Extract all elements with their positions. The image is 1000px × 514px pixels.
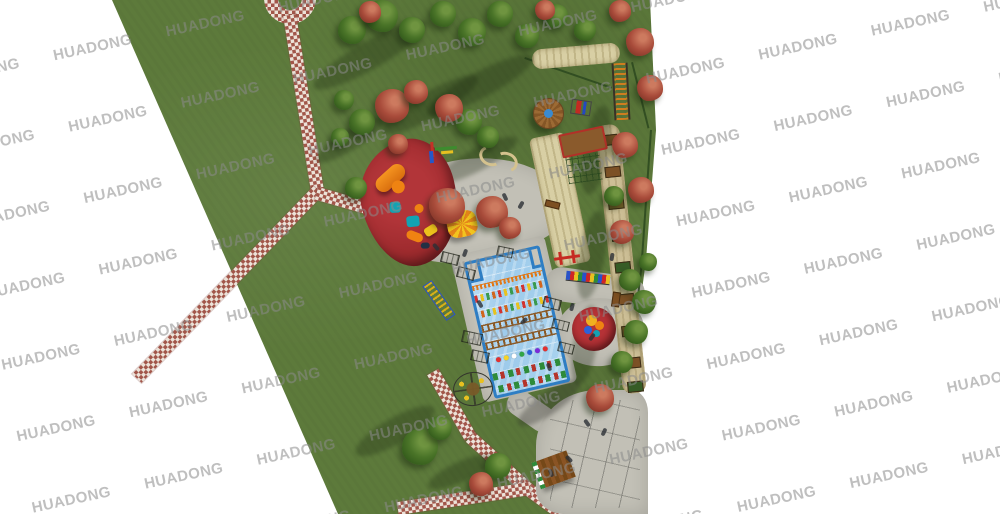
watermark-text: HUADONG bbox=[0, 55, 21, 88]
tree-red bbox=[610, 220, 634, 244]
tree-red bbox=[404, 80, 428, 104]
watermark-text: HUADONG bbox=[930, 292, 1000, 325]
play-platform bbox=[406, 215, 420, 227]
watermark-text: HUADONG bbox=[52, 31, 134, 64]
watermark-text: HUADONG bbox=[675, 197, 757, 230]
watermark-text: HUADONG bbox=[143, 459, 225, 492]
tree-green bbox=[611, 351, 633, 373]
watermark-text: HUADONG bbox=[869, 6, 951, 39]
seesaw-plane bbox=[553, 247, 581, 267]
watermark-text: HUADONG bbox=[15, 412, 97, 445]
tree-red bbox=[429, 188, 465, 224]
float-ball bbox=[511, 353, 517, 359]
watermark-text: HUADONG bbox=[772, 102, 854, 135]
tree-red bbox=[612, 132, 638, 158]
swing-beam bbox=[441, 150, 453, 154]
watermark-text: HUADONG bbox=[976, 506, 1000, 514]
tree-red bbox=[628, 177, 654, 203]
site-plan-render: HUADONGHUADONGHUADONGHUADONGHUADONGHUADO… bbox=[0, 0, 1000, 514]
watermark-text: HUADONG bbox=[128, 388, 210, 421]
watermark-text: HUADONG bbox=[982, 0, 1000, 16]
watermark-text: HUADONG bbox=[705, 340, 787, 373]
watermark-text: HUADONG bbox=[0, 126, 36, 159]
watermark-text: HUADONG bbox=[67, 102, 149, 135]
tree-green bbox=[619, 269, 641, 291]
rope-climb-net bbox=[565, 153, 602, 184]
slide-tube bbox=[405, 229, 424, 243]
watermark-text: HUADONG bbox=[915, 221, 997, 254]
watermark-text: HUADONG bbox=[802, 245, 884, 278]
swing-set bbox=[428, 138, 460, 165]
watermark-text: HUADONG bbox=[660, 126, 742, 159]
watermark-text: HUADONG bbox=[0, 198, 52, 231]
merry-go-round bbox=[533, 98, 564, 129]
obstacle-station bbox=[627, 380, 644, 393]
play-structure bbox=[414, 203, 425, 214]
merry-go-round-hub bbox=[544, 109, 553, 118]
tree-red bbox=[469, 472, 493, 496]
tree-green bbox=[515, 24, 539, 48]
tree-red bbox=[626, 28, 654, 56]
watermark-text: HUADONG bbox=[885, 78, 967, 111]
float-ball bbox=[495, 357, 501, 363]
play-structure bbox=[584, 326, 592, 334]
tree-red bbox=[359, 1, 381, 23]
watermark-text: HUADONG bbox=[30, 483, 112, 514]
tree-green bbox=[428, 416, 452, 440]
watermark-text: HUADONG bbox=[961, 435, 1000, 468]
watermark-text: HUADONG bbox=[818, 316, 900, 349]
watermark-text: HUADONG bbox=[848, 459, 930, 492]
tree-green bbox=[604, 186, 624, 206]
watermark-text: HUADONG bbox=[690, 268, 772, 301]
tree-red bbox=[609, 0, 631, 22]
tree-red bbox=[586, 384, 614, 412]
watermark-text: HUADONG bbox=[757, 30, 839, 63]
tree-red bbox=[637, 75, 663, 101]
tree-red bbox=[535, 0, 555, 20]
spring-rider bbox=[423, 223, 439, 238]
tree-green bbox=[345, 177, 367, 199]
watermark-text: HUADONG bbox=[720, 411, 802, 444]
tree-green bbox=[399, 17, 425, 43]
watermark-text: HUADONG bbox=[787, 173, 869, 206]
float-ball bbox=[534, 348, 540, 354]
watermark-text: HUADONG bbox=[0, 269, 67, 302]
monkey-bar-ladder bbox=[612, 63, 631, 121]
obstacle-station bbox=[604, 166, 621, 179]
tree-green bbox=[331, 128, 349, 146]
tree-green bbox=[624, 320, 648, 344]
tree-green bbox=[349, 109, 375, 135]
float-ball bbox=[503, 355, 509, 361]
watermark-text: HUADONG bbox=[82, 174, 164, 207]
watermark-text: HUADONG bbox=[736, 483, 818, 514]
watermark-text: HUADONG bbox=[0, 0, 6, 17]
watermark-text: HUADONG bbox=[945, 363, 1000, 396]
tree-green bbox=[639, 253, 657, 271]
mini-climb-frame bbox=[570, 99, 592, 117]
watermark-text: HUADONG bbox=[900, 149, 982, 182]
float-ball bbox=[542, 346, 548, 352]
tree-green bbox=[632, 290, 656, 314]
tree-green bbox=[334, 90, 354, 110]
float-ball bbox=[519, 351, 525, 357]
tree-red bbox=[435, 94, 463, 122]
path-roundabout-center bbox=[278, 0, 302, 10]
slide-structure bbox=[390, 179, 406, 195]
tree-green bbox=[487, 1, 513, 27]
tree-red bbox=[499, 217, 521, 239]
float-ball bbox=[527, 349, 533, 355]
watermark-text: HUADONG bbox=[0, 340, 82, 373]
watermark-text: HUADONG bbox=[97, 245, 179, 278]
play-structure bbox=[595, 321, 604, 330]
play-platform bbox=[389, 202, 400, 213]
toddler-play-circle bbox=[572, 307, 616, 351]
watermark-text: HUADONG bbox=[833, 387, 915, 420]
tree-green bbox=[477, 126, 499, 148]
tree-green bbox=[574, 19, 596, 41]
tree-green bbox=[430, 1, 456, 27]
tree-green bbox=[458, 18, 486, 46]
play-structure bbox=[421, 242, 430, 249]
tree-red bbox=[388, 134, 408, 154]
